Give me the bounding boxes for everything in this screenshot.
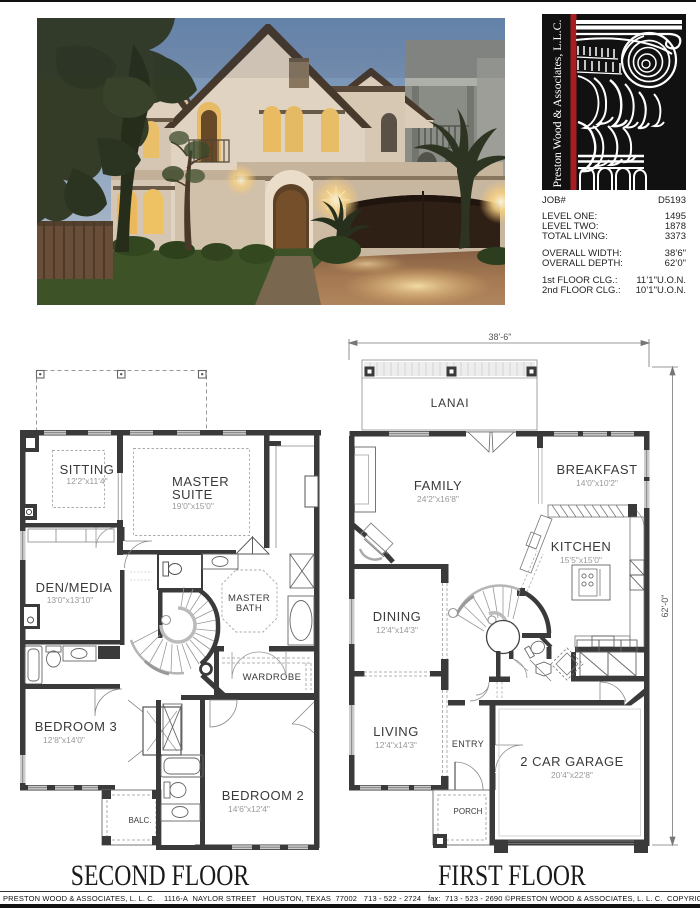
- svg-text:24'2"x16'8": 24'2"x16'8": [417, 494, 459, 504]
- svg-text:BATH: BATH: [236, 603, 262, 614]
- svg-text:BREAKFAST: BREAKFAST: [556, 462, 637, 477]
- svg-text:2 CAR GARAGE: 2 CAR GARAGE: [520, 754, 624, 769]
- svg-text:BEDROOM 3: BEDROOM 3: [35, 719, 118, 734]
- svg-text:19'0"x15'0": 19'0"x15'0": [172, 501, 214, 511]
- svg-text:Preston Wood & Associates, L.L: Preston Wood & Associates, L.L.C.: [550, 20, 564, 188]
- svg-text:12'2"x11'4": 12'2"x11'4": [66, 476, 107, 486]
- svg-text:13'0"x13'10": 13'0"x13'10": [47, 595, 94, 605]
- svg-text:62'-0": 62'-0": [660, 595, 670, 618]
- svg-text:LANAI: LANAI: [431, 396, 470, 410]
- svg-text:12'4"x14'3": 12'4"x14'3": [376, 625, 418, 635]
- svg-text:DINING: DINING: [373, 609, 422, 624]
- svg-text:BALC.: BALC.: [128, 816, 151, 825]
- svg-text:BEDROOM 2: BEDROOM 2: [222, 788, 305, 803]
- svg-text:SITTING: SITTING: [60, 462, 115, 477]
- svg-text:SUITE: SUITE: [172, 487, 213, 502]
- svg-text:14'0"x10'2": 14'0"x10'2": [576, 478, 618, 488]
- svg-text:14'6"x12'4": 14'6"x12'4": [228, 804, 270, 814]
- svg-text:ENTRY: ENTRY: [452, 739, 484, 749]
- svg-text:20'4"x22'8": 20'4"x22'8": [551, 770, 593, 780]
- svg-text:FAMILY: FAMILY: [414, 478, 462, 493]
- svg-text:PORCH: PORCH: [454, 807, 483, 816]
- svg-text:KITCHEN: KITCHEN: [551, 539, 612, 554]
- svg-text:WARDROBE: WARDROBE: [243, 672, 302, 683]
- svg-text:LIVING: LIVING: [373, 724, 419, 739]
- svg-text:12'4"x14'3": 12'4"x14'3": [375, 740, 417, 750]
- svg-text:DEN/MEDIA: DEN/MEDIA: [36, 580, 113, 595]
- svg-text:12'8"x14'0": 12'8"x14'0": [43, 735, 85, 745]
- svg-text:38'-6": 38'-6": [489, 332, 512, 342]
- svg-text:15'5"x15'0": 15'5"x15'0": [560, 555, 602, 565]
